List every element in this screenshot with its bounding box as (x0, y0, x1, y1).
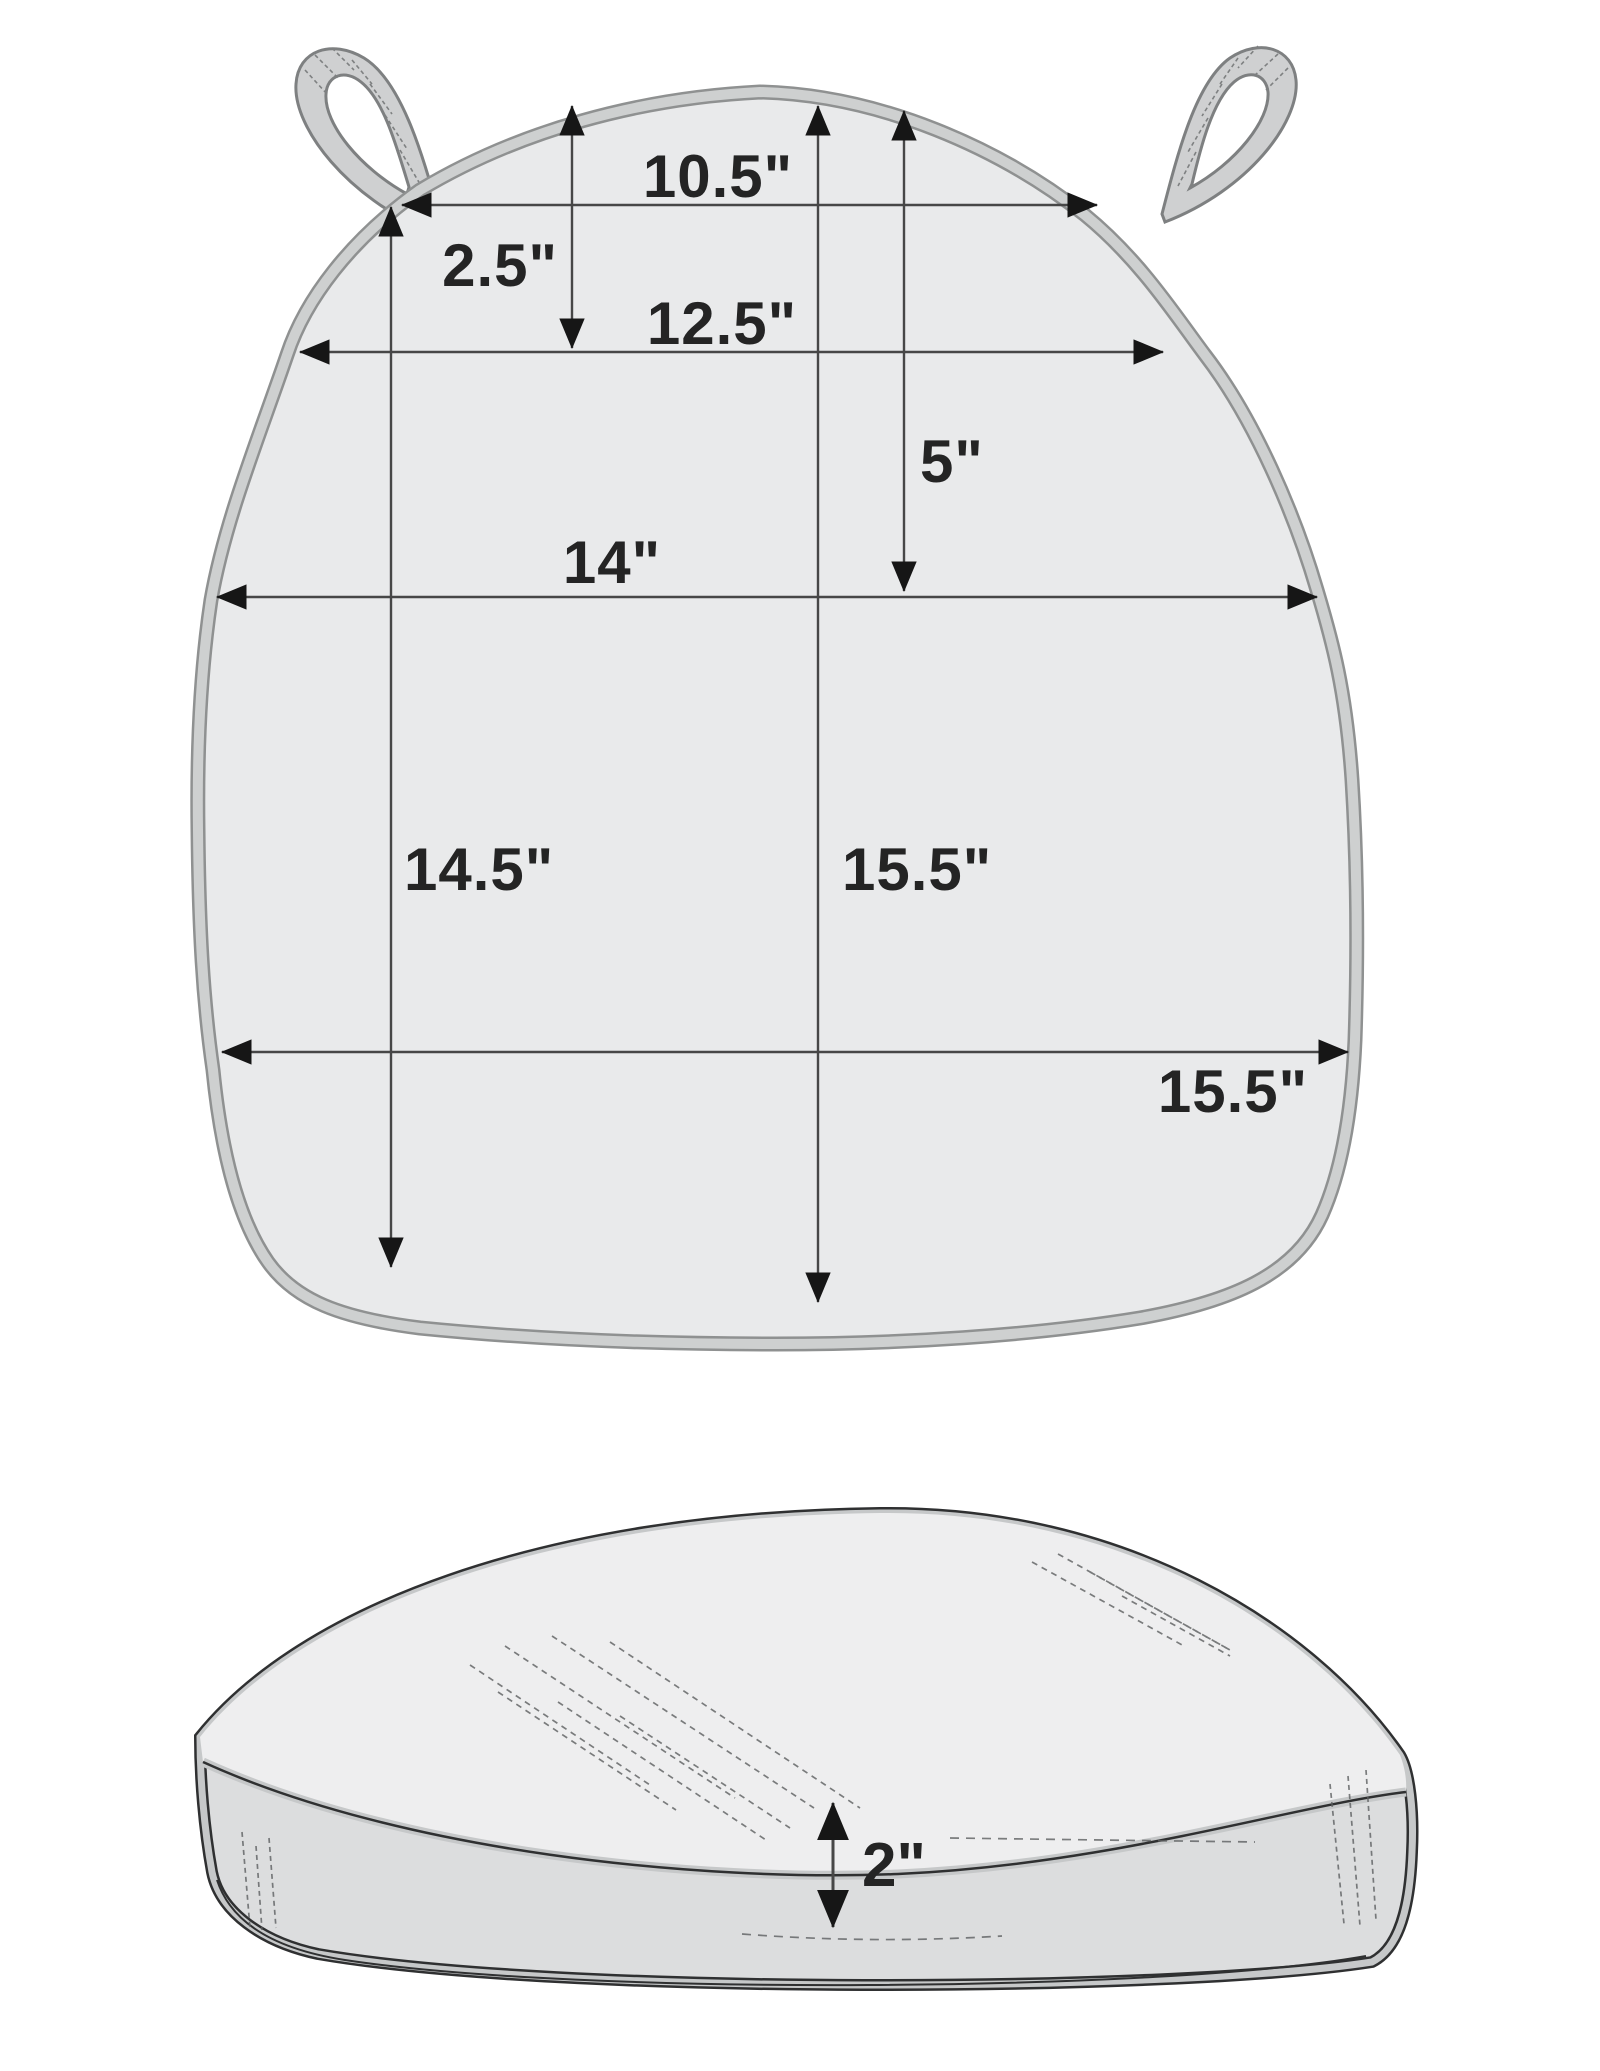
cushion-outline (198, 92, 1357, 1344)
tie-strap-right (1162, 48, 1296, 222)
dim-label-thickness: 2" (862, 1831, 926, 1900)
diagram-canvas: 10.5" 2.5" 12.5" 5" 14" 14.5" 15.5" 15.5… (0, 0, 1600, 2071)
dim-label-upper-width: 12.5" (647, 290, 797, 357)
cushion-side-view: 2" (200, 1513, 1413, 1985)
cushion-dimension-diagram: 10.5" 2.5" 12.5" 5" 14" 14.5" 15.5" 15.5… (0, 0, 1600, 2071)
dim-label-middle-width: 14" (563, 529, 661, 596)
dim-label-center-depth: 15.5" (842, 836, 992, 903)
dim-label-top-drop: 5" (920, 428, 984, 495)
dim-label-bottom-width: 15.5" (1158, 1058, 1308, 1125)
dim-label-left-depth: 14.5" (404, 836, 554, 903)
cushion-top-view: 10.5" 2.5" 12.5" 5" 14" 14.5" 15.5" 15.5… (198, 46, 1357, 1344)
dim-label-top-width: 10.5" (643, 143, 793, 210)
dim-label-strap-inset: 2.5" (442, 232, 558, 299)
